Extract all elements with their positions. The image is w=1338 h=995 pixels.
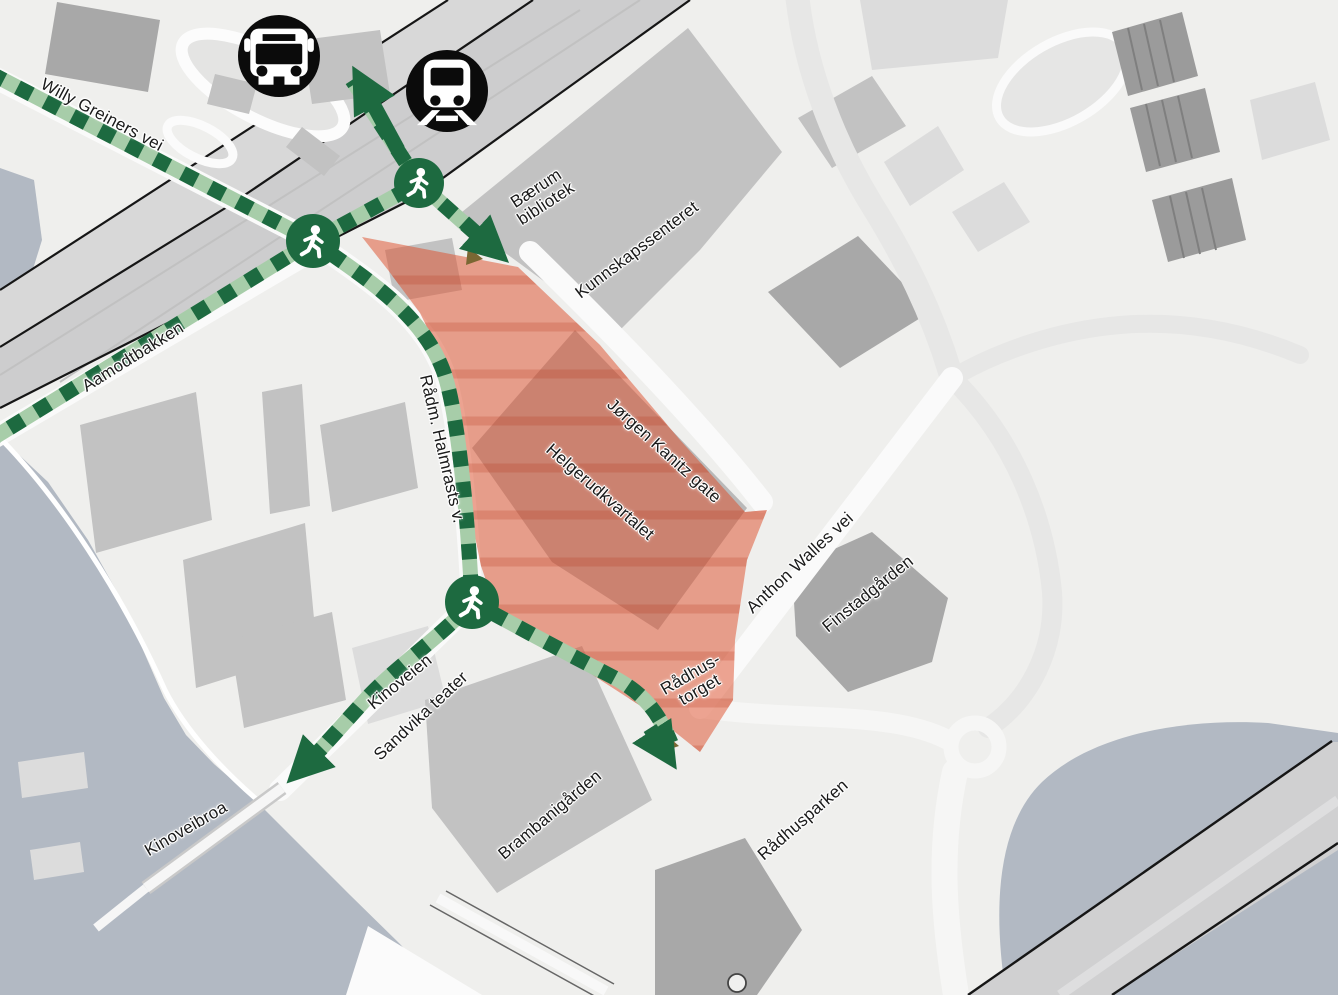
pedestrian-node-icon (394, 158, 444, 208)
bus-stop-marker (238, 15, 320, 97)
sandvika-area-map: Willy Greiners vei Aamodtbakken Rådm. Ha… (0, 0, 1338, 995)
map-canvas (0, 0, 1338, 995)
train-icon (406, 50, 488, 132)
walking-person-icon (401, 165, 437, 201)
train-station-marker (406, 50, 488, 132)
walking-person-icon (294, 222, 333, 261)
walking-person-icon (453, 583, 492, 622)
pedestrian-node-icon (445, 575, 499, 629)
pedestrian-node-icon (286, 214, 340, 268)
bus-icon (238, 15, 320, 97)
